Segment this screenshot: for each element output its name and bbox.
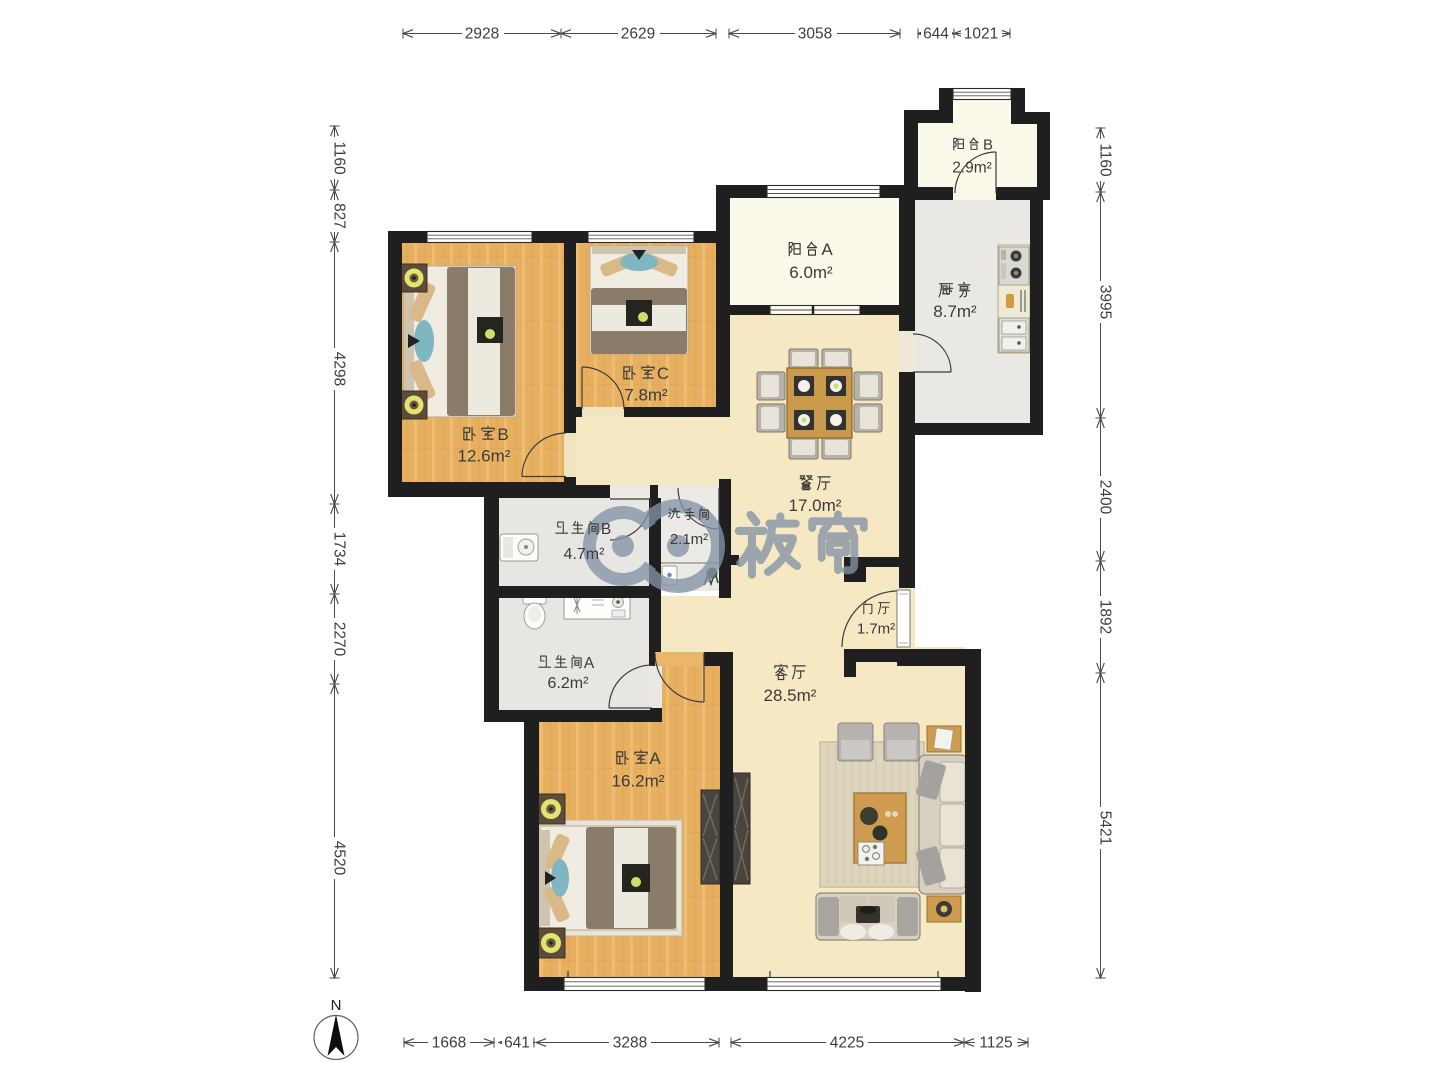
svg-text:8.7m²: 8.7m²: [933, 302, 977, 321]
svg-text:1668: 1668: [432, 1035, 466, 1052]
svg-text:3288: 3288: [613, 1035, 647, 1052]
svg-text:1892: 1892: [1097, 600, 1114, 634]
svg-text:7.8m²: 7.8m²: [624, 386, 668, 405]
svg-text:6.0m²: 6.0m²: [789, 263, 833, 282]
svg-text:2400: 2400: [1097, 480, 1114, 515]
svg-text:827: 827: [331, 203, 348, 229]
svg-text:6.2m²: 6.2m²: [548, 675, 590, 692]
svg-text:B: B: [497, 425, 508, 444]
svg-text:16.2m²: 16.2m²: [612, 772, 665, 791]
svg-text:1021: 1021: [964, 26, 998, 43]
svg-text:1.7m²: 1.7m²: [857, 621, 895, 638]
svg-text:1160: 1160: [331, 141, 348, 175]
svg-text:2928: 2928: [465, 26, 499, 43]
svg-text:1125: 1125: [979, 1035, 1012, 1052]
svg-text:4298: 4298: [331, 352, 348, 386]
svg-text:A: A: [821, 240, 833, 259]
svg-text:3995: 3995: [1097, 285, 1114, 319]
svg-text:B: B: [983, 137, 993, 154]
svg-text:2.1m²: 2.1m²: [670, 531, 708, 548]
svg-text:5421: 5421: [1097, 811, 1114, 845]
svg-text:N: N: [331, 997, 342, 1014]
svg-text:A: A: [649, 749, 661, 768]
svg-text:4.7m²: 4.7m²: [564, 546, 606, 563]
svg-text:4225: 4225: [830, 1035, 864, 1052]
svg-text:2270: 2270: [331, 622, 348, 657]
svg-text:B: B: [601, 521, 611, 538]
svg-text:1734: 1734: [331, 532, 348, 567]
svg-text:641: 641: [504, 1035, 530, 1052]
svg-text:3058: 3058: [798, 26, 832, 43]
svg-text:644: 644: [923, 26, 949, 43]
svg-text:A: A: [584, 655, 595, 672]
svg-text:2629: 2629: [621, 26, 655, 43]
svg-text:C: C: [657, 364, 669, 383]
svg-text:1160: 1160: [1097, 143, 1114, 177]
svg-text:2.9m²: 2.9m²: [952, 160, 992, 177]
svg-text:28.5m²: 28.5m²: [764, 686, 817, 705]
svg-text:17.0m²: 17.0m²: [789, 496, 842, 515]
svg-text:12.6m²: 12.6m²: [458, 447, 511, 466]
svg-text:4520: 4520: [331, 841, 348, 876]
